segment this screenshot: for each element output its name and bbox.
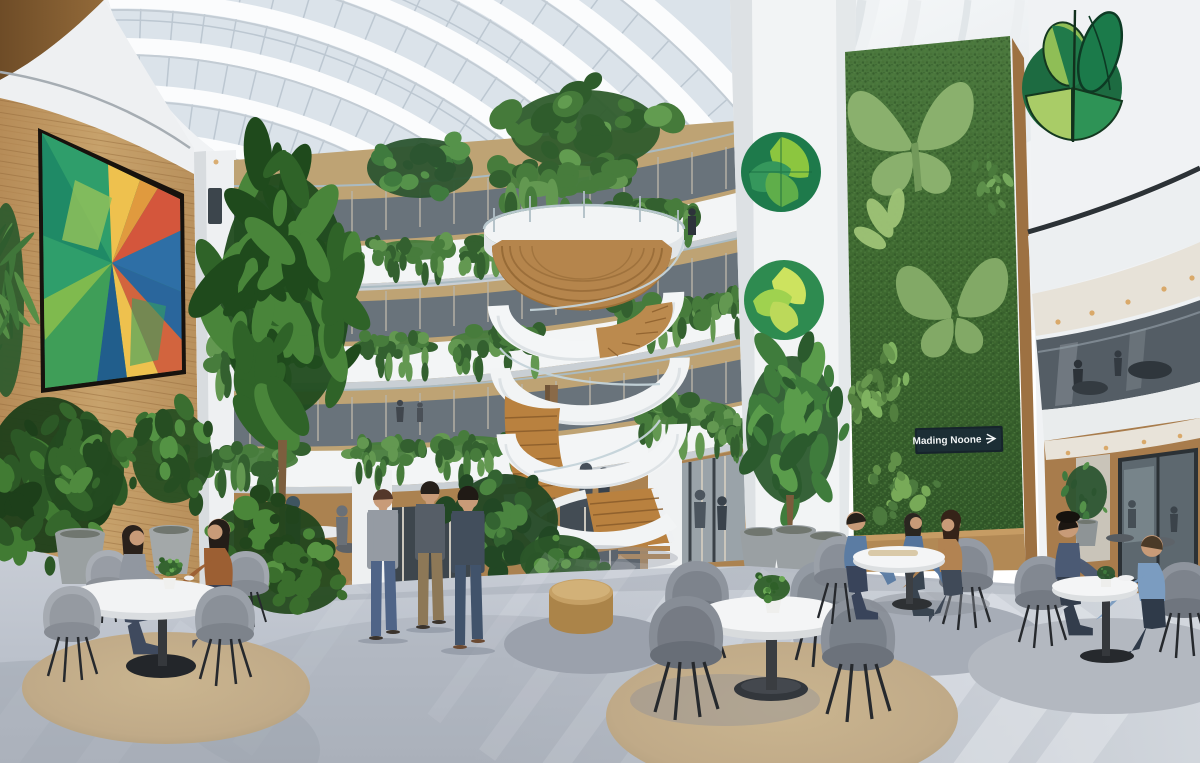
svg-text:Mading Noone: Mading Noone: [912, 434, 982, 447]
